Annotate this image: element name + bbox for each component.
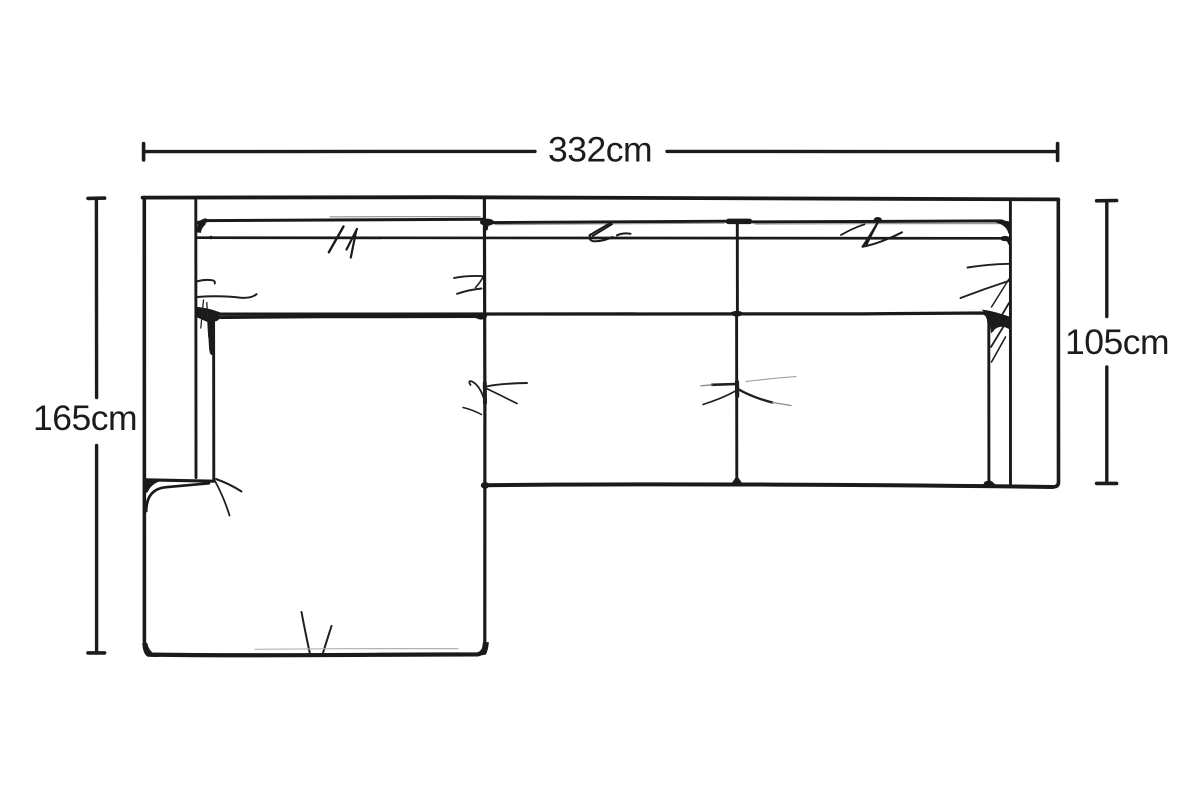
svg-text:332cm: 332cm [548, 130, 652, 170]
svg-text:105cm: 105cm [1065, 322, 1169, 362]
svg-text:165cm: 165cm [33, 398, 137, 438]
